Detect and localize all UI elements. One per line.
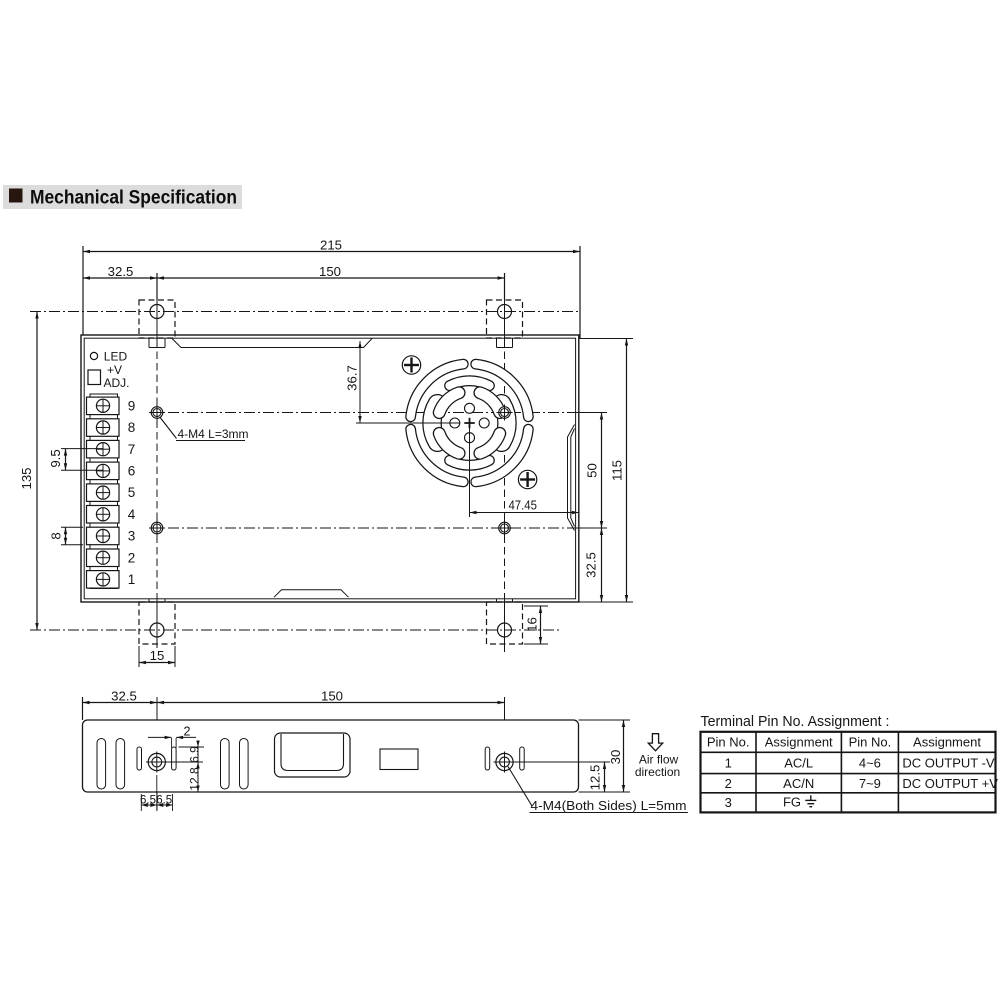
- svg-text:Terminal Pin No. Assignment :: Terminal Pin No. Assignment :: [701, 713, 890, 730]
- svg-text:9: 9: [128, 398, 136, 413]
- svg-text:150: 150: [321, 688, 343, 703]
- svg-text:12.8: 12.8: [188, 767, 202, 791]
- svg-text:50: 50: [585, 463, 600, 478]
- svg-text:6.9: 6.9: [188, 746, 202, 763]
- svg-text:6.5: 6.5: [156, 795, 172, 807]
- svg-text:4~6: 4~6: [859, 756, 881, 771]
- svg-text:3: 3: [725, 795, 732, 810]
- svg-text:Pin No.: Pin No.: [707, 735, 750, 750]
- svg-text:FG: FG: [783, 795, 801, 810]
- svg-text:Assignment: Assignment: [765, 735, 833, 750]
- svg-text:115: 115: [610, 460, 625, 481]
- svg-text:Assignment: Assignment: [913, 735, 981, 750]
- svg-text:3: 3: [128, 529, 136, 544]
- svg-text:direction: direction: [635, 765, 680, 779]
- svg-text:AC/L: AC/L: [784, 756, 813, 771]
- svg-text:215: 215: [320, 237, 342, 252]
- svg-text:Pin No.: Pin No.: [849, 735, 892, 750]
- svg-text:6.5: 6.5: [140, 795, 156, 807]
- svg-text:2: 2: [725, 776, 732, 791]
- svg-text:ADJ.: ADJ.: [104, 376, 130, 390]
- svg-text:15: 15: [150, 648, 165, 663]
- svg-text:47.45: 47.45: [508, 499, 537, 513]
- svg-text:8: 8: [128, 420, 136, 435]
- svg-text:32.5: 32.5: [584, 552, 599, 578]
- svg-text:32.5: 32.5: [108, 264, 134, 279]
- svg-text:1: 1: [725, 756, 732, 771]
- svg-text:4: 4: [128, 507, 136, 522]
- svg-text:6: 6: [128, 464, 136, 479]
- svg-text:16: 16: [525, 617, 540, 632]
- svg-text:+V: +V: [107, 363, 122, 377]
- svg-text:150: 150: [319, 264, 341, 279]
- svg-text:1: 1: [128, 572, 136, 587]
- svg-text:135: 135: [19, 467, 34, 489]
- svg-text:2: 2: [184, 725, 191, 739]
- svg-text:12.5: 12.5: [588, 765, 603, 791]
- svg-text:8: 8: [49, 532, 64, 539]
- svg-text:30: 30: [608, 750, 623, 765]
- svg-text:7~9: 7~9: [859, 776, 881, 791]
- svg-text:4-M4 L=3mm: 4-M4 L=3mm: [178, 427, 249, 441]
- svg-text:LED: LED: [104, 350, 128, 364]
- svg-text:Mechanical Specification: Mechanical Specification: [30, 187, 237, 209]
- svg-text:4-M4(Both Sides) L=5mm: 4-M4(Both Sides) L=5mm: [531, 799, 687, 813]
- svg-text:9.5: 9.5: [48, 449, 63, 467]
- svg-text:7: 7: [128, 442, 136, 457]
- svg-text:5: 5: [128, 485, 136, 500]
- svg-text:32.5: 32.5: [111, 688, 137, 703]
- svg-text:2: 2: [128, 550, 136, 565]
- svg-text:DC OUTPUT -V: DC OUTPUT -V: [902, 756, 995, 771]
- svg-text:AC/N: AC/N: [783, 776, 814, 791]
- svg-text:36.7: 36.7: [345, 365, 360, 391]
- svg-text:DC OUTPUT +V: DC OUTPUT +V: [902, 776, 998, 791]
